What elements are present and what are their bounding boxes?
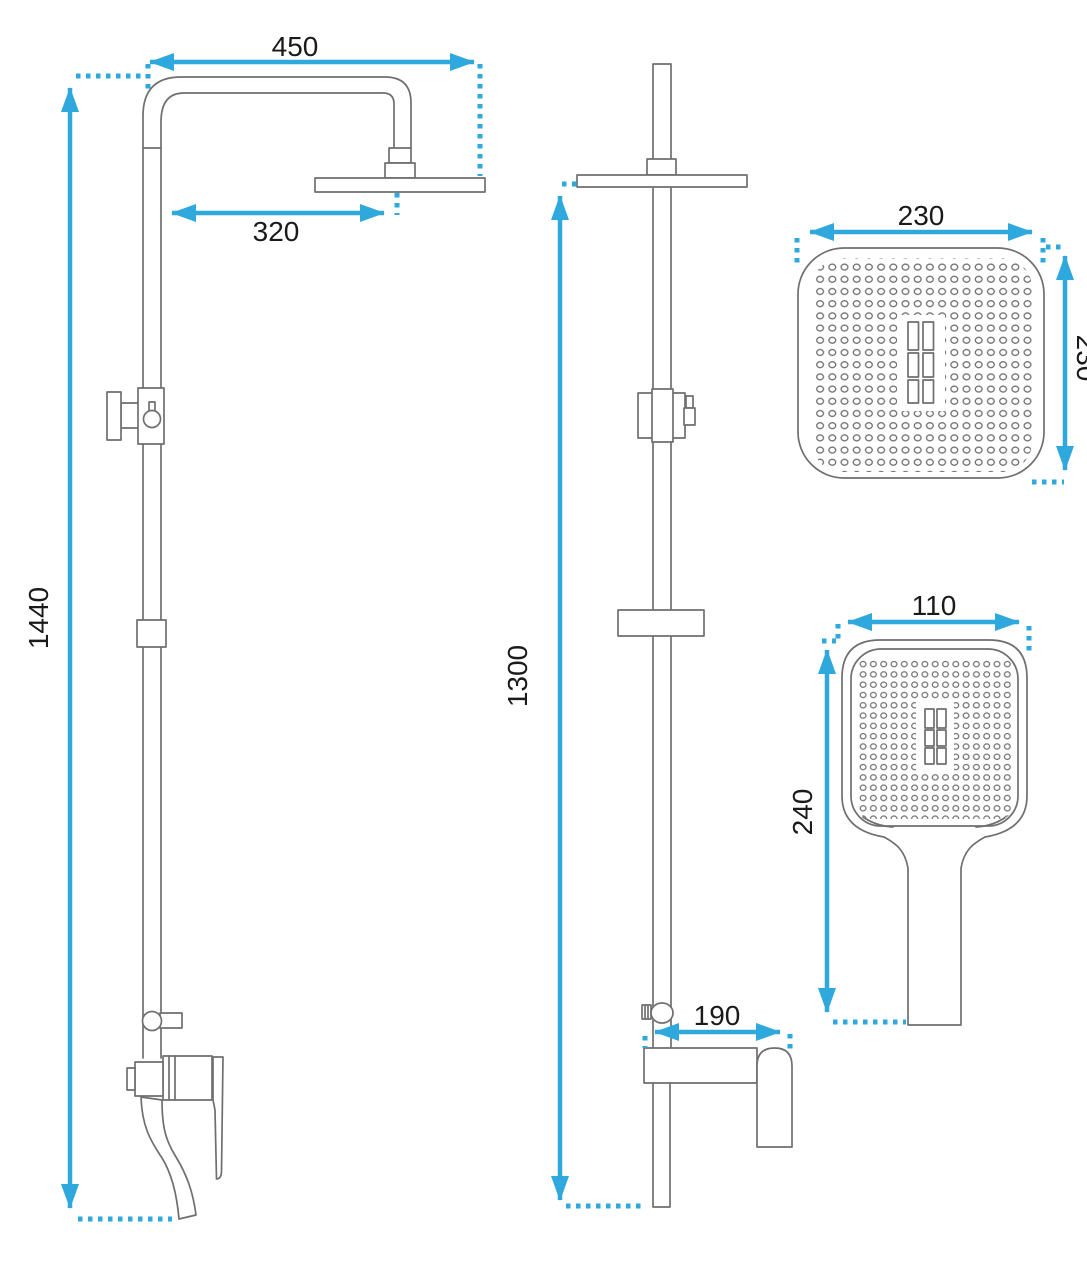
head-connector-upper xyxy=(389,148,411,163)
mixer-left-tab xyxy=(127,1068,135,1090)
center-jet xyxy=(937,709,946,728)
mixer-handle-side xyxy=(757,1048,792,1147)
center-jet xyxy=(923,322,934,350)
head-connector-lower xyxy=(385,163,415,178)
center-jet xyxy=(908,380,919,403)
overhead-shower-face-view: 230 230 xyxy=(797,200,1087,482)
bracket-side-pin xyxy=(686,396,693,408)
front-view: 450 320 1440 xyxy=(23,31,485,1219)
dimension-label-110: 110 xyxy=(912,590,957,621)
dim-front-arm-reach: 450 xyxy=(148,31,480,176)
center-jet xyxy=(923,353,934,377)
hook-knob xyxy=(143,1012,162,1031)
bracket-side-knob xyxy=(684,408,695,425)
slider-holder-side xyxy=(618,610,704,636)
center-jet xyxy=(908,322,919,350)
mixer-body xyxy=(163,1056,212,1100)
bracket-pin xyxy=(149,402,155,411)
diverter-knob-ribbed xyxy=(642,1005,651,1019)
dimension-label-230-right: 230 xyxy=(1071,335,1087,382)
dimension-label-240: 240 xyxy=(787,789,818,836)
riser-pipe-lower xyxy=(653,1083,670,1207)
dimension-label-190: 190 xyxy=(694,1000,741,1031)
technical-drawing-canvas: 450 320 1440 xyxy=(0,0,1087,1280)
center-jet xyxy=(937,730,946,746)
mixer-left-block xyxy=(135,1062,163,1096)
dimension-label-1300: 1300 xyxy=(502,645,533,707)
dimension-label-450: 450 xyxy=(272,31,319,62)
overhead-shower-plate-side xyxy=(577,175,747,187)
center-jet xyxy=(925,709,934,728)
hand-nozzle-gap xyxy=(916,702,954,772)
center-jet xyxy=(937,748,946,764)
dimension-label-1440: 1440 xyxy=(23,587,54,649)
wall-bracket-side-clamp xyxy=(652,389,673,442)
overhead-shower-plate xyxy=(315,178,485,192)
center-jet xyxy=(925,730,934,746)
mixer-handle-lever xyxy=(213,1057,223,1179)
center-jet xyxy=(923,380,934,403)
dim-side-column-height: 1300 xyxy=(502,184,645,1206)
spout-curved xyxy=(141,1097,196,1219)
head-connector-side xyxy=(647,159,676,175)
mixer-body-side xyxy=(644,1048,757,1083)
overhead-nozzle-gap xyxy=(897,315,945,411)
center-jet xyxy=(925,748,934,764)
dim-front-head-offset: 320 xyxy=(172,193,397,247)
hand-shower-view: 110 240 xyxy=(787,590,1029,1025)
diverter-dial xyxy=(651,1003,673,1023)
riser-pipe xyxy=(653,64,671,1048)
shower-set-dimension-drawing: 450 320 1440 xyxy=(0,0,1087,1280)
wall-bracket-plate xyxy=(107,392,121,440)
slider-holder xyxy=(137,620,166,647)
side-view: 1300 190 xyxy=(502,64,792,1207)
center-jet xyxy=(908,353,919,377)
dimension-label-320: 320 xyxy=(253,216,300,247)
hook-bracket xyxy=(160,1013,182,1028)
dimension-label-230-top: 230 xyxy=(898,200,945,231)
bracket-knob xyxy=(144,411,161,428)
